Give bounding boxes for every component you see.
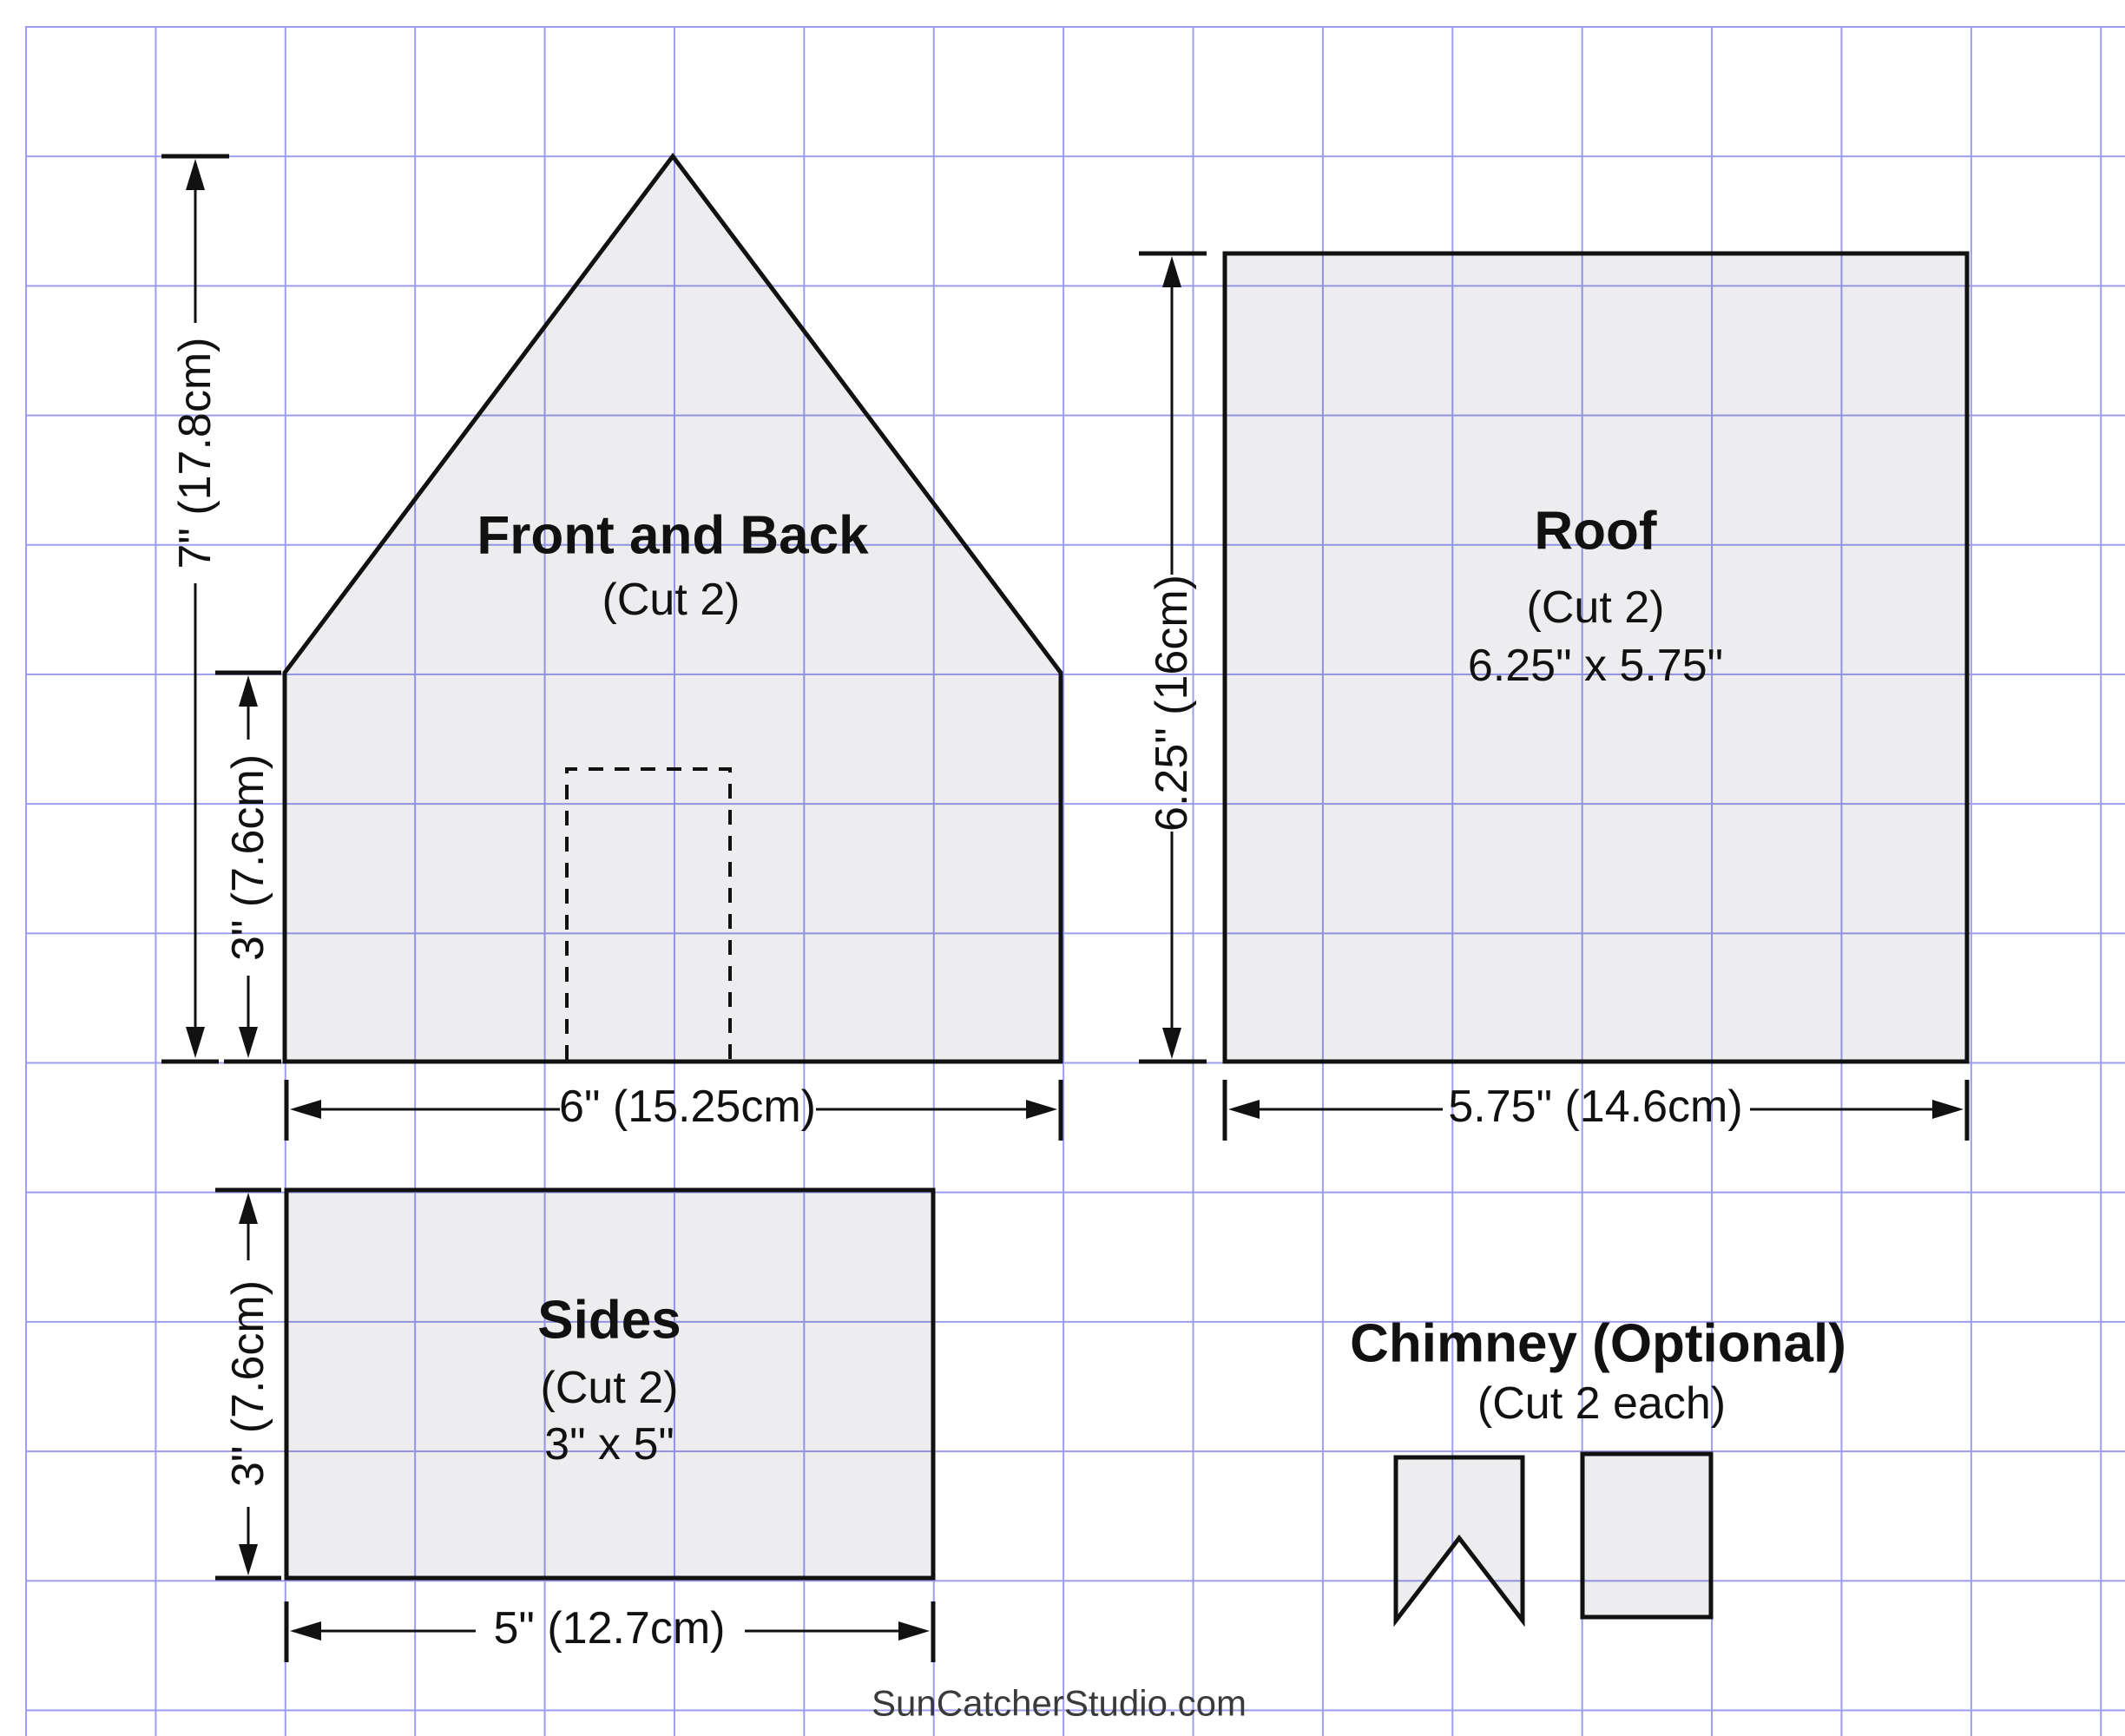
arrow-left-icon <box>1228 1100 1260 1119</box>
chimney-rect-piece-outline <box>1582 1454 1711 1617</box>
roof-subtitle: (Cut 2) <box>1527 582 1665 633</box>
arrow-down-icon <box>239 1027 258 1058</box>
front-back-height-dimension: 7" (17.8cm) <box>161 156 229 1062</box>
sides-height-label: 3" (7.6cm) <box>223 1280 273 1487</box>
sides-piece: Sides (Cut 2) 3" x 5" <box>286 1190 933 1578</box>
roof-height-dimension: 6.25" (16cm) <box>1139 253 1207 1062</box>
sides-subtitle: (Cut 2) <box>541 1363 679 1413</box>
roof-piece: Roof (Cut 2) 6.25" x 5.75" <box>1225 253 1967 1062</box>
arrow-left-icon <box>290 1621 321 1641</box>
arrow-down-icon <box>239 1544 258 1575</box>
front-back-height-label: 7" (17.8cm) <box>170 338 220 569</box>
site-credit: SunCatcherStudio.com <box>872 1683 1247 1724</box>
front-back-wall-height-dimension: 3" (7.6cm) <box>215 673 281 1062</box>
arrow-left-icon <box>290 1100 321 1119</box>
front-back-piece: Front and Back (Cut 2) <box>285 156 1061 1062</box>
front-back-subtitle: (Cut 2) <box>602 575 740 625</box>
roof-width-label: 5.75" (14.6cm) <box>1448 1082 1742 1132</box>
chimney-title: Chimney (Optional) <box>1350 1314 1846 1374</box>
pattern-page: Front and Back (Cut 2) 7" (17.8cm) 3" (7… <box>0 0 2125 1736</box>
arrow-down-icon <box>1162 1028 1181 1059</box>
front-back-wall-height-label: 3" (7.6cm) <box>223 754 273 961</box>
roof-height-label: 6.25" (16cm) <box>1147 575 1197 832</box>
sides-size-label: 3" x 5" <box>544 1419 674 1470</box>
arrow-right-icon <box>1932 1100 1964 1119</box>
front-back-title: Front and Back <box>477 506 869 566</box>
sides-height-dimension: 3" (7.6cm) <box>215 1190 281 1578</box>
arrow-right-icon <box>898 1621 930 1641</box>
chimney-subtitle: (Cut 2 each) <box>1477 1378 1726 1429</box>
front-back-width-dimension: 6" (15.25cm) <box>286 1080 1061 1141</box>
roof-width-dimension: 5.75" (14.6cm) <box>1225 1080 1967 1141</box>
arrow-right-icon <box>1026 1100 1057 1119</box>
sides-width-label: 5" (12.7cm) <box>494 1603 726 1654</box>
arrow-up-icon <box>239 1193 258 1224</box>
roof-title: Roof <box>1534 502 1657 562</box>
roof-size-label: 6.25" x 5.75" <box>1468 641 1723 691</box>
arrow-up-icon <box>186 159 205 190</box>
arrow-down-icon <box>186 1027 205 1058</box>
arrow-up-icon <box>1162 256 1181 287</box>
sides-width-dimension: 5" (12.7cm) <box>286 1601 933 1662</box>
arrow-up-icon <box>239 675 258 707</box>
pattern-drawing: Front and Back (Cut 2) 7" (17.8cm) 3" (7… <box>0 0 2125 1736</box>
chimney-section: Chimney (Optional) (Cut 2 each) <box>1350 1314 1846 1621</box>
chimney-notched-piece-outline <box>1396 1457 1523 1621</box>
front-back-width-label: 6" (15.25cm) <box>559 1082 816 1132</box>
sides-title: Sides <box>537 1291 681 1351</box>
